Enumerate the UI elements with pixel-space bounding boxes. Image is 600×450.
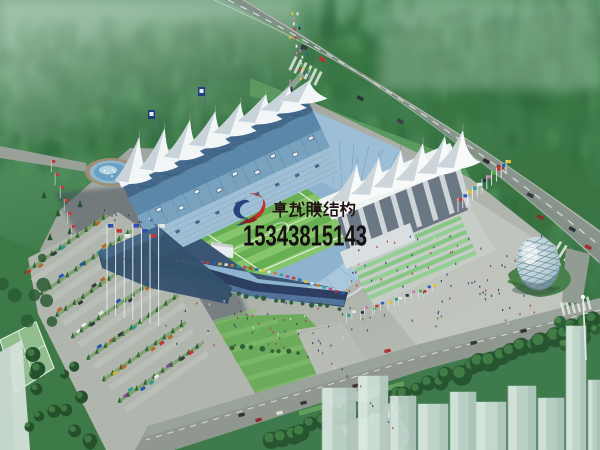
- svg-text:15343815143: 15343815143: [243, 221, 367, 253]
